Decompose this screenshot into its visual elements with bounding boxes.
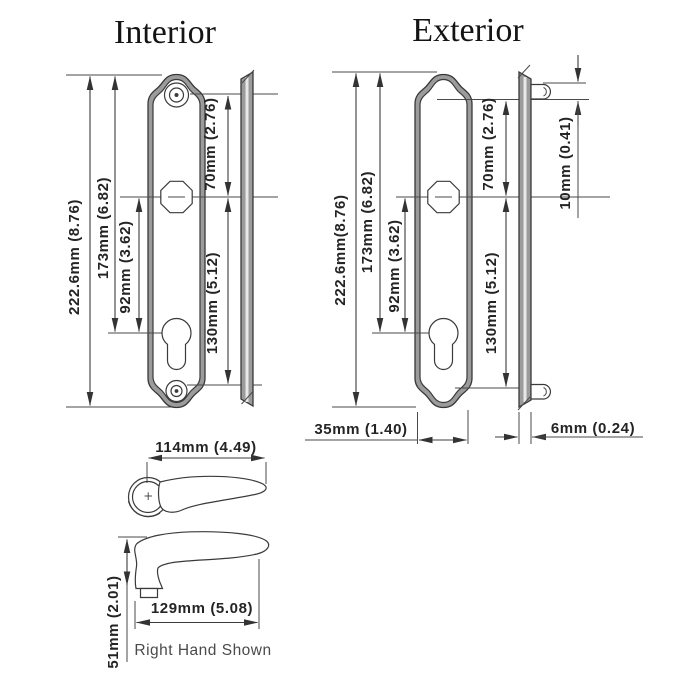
lever-spindle-cross-mark: [145, 492, 153, 500]
lever-handle-views: 114mm (4.49) 51mm (2.01): [105, 439, 272, 669]
exterior-70-label: 70mm (2.76): [480, 97, 497, 190]
lever-side-view: [135, 532, 269, 598]
lever-side-view-body: [135, 532, 269, 589]
dimension-drawing-page: Interior: [0, 0, 700, 700]
lever-length-label: 129mm (5.08): [151, 600, 253, 617]
exterior-bottom-fixing-peg: [531, 385, 550, 400]
interior-edge-profile: [241, 70, 254, 406]
lever-spindle-stub: [141, 589, 158, 598]
lever-top-view-blade: [159, 476, 267, 512]
door-handle-dimension-diagram: Interior: [0, 0, 700, 700]
exterior-130-label: 130mm (5.12): [483, 252, 500, 354]
interior-title: Interior: [114, 14, 217, 51]
lever-projection-label: 51mm (2.01): [105, 575, 122, 668]
exterior-title: Exterior: [412, 12, 524, 49]
interior-view: Interior: [66, 14, 278, 408]
exterior-thickness-label: 6mm (0.24): [551, 420, 635, 437]
lever-top-view: [129, 476, 267, 516]
exterior-view: Exterior: [305, 12, 643, 444]
exterior-top-fixing-peg: [531, 85, 550, 100]
exterior-overall-label: 222.6mm(8.76): [332, 194, 349, 305]
handing-caption: Right Hand Shown: [134, 642, 271, 659]
exterior-173-label: 173mm (6.82): [359, 171, 376, 273]
interior-overall-label: 222.6mm (8.76): [66, 199, 83, 315]
exterior-peg-label: 10mm (0.41): [557, 116, 574, 209]
interior-130-label: 130mm (5.12): [204, 252, 221, 354]
exterior-edge-profile: [518, 65, 550, 410]
lever-grip-label: 114mm (4.49): [155, 439, 256, 456]
exterior-92-label: 92mm (3.62): [386, 219, 403, 312]
exterior-width-label: 35mm (1.40): [314, 421, 407, 438]
interior-70-label: 70mm (2.76): [202, 97, 219, 190]
interior-173-label: 173mm (6.82): [95, 177, 112, 279]
interior-92-label: 92mm (3.62): [117, 220, 134, 313]
